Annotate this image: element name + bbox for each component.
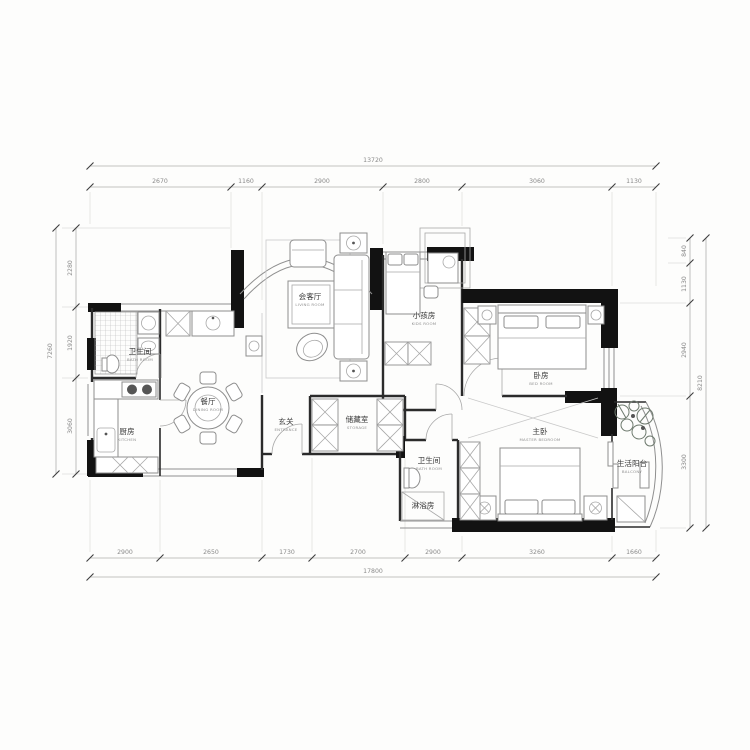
dim-right-seg0: 840 xyxy=(681,245,688,257)
room-label-kids-en: KIDS ROOM xyxy=(412,321,437,326)
door-arc-bath2 xyxy=(426,414,452,440)
dining-chair xyxy=(173,382,191,402)
toilet-tank xyxy=(404,468,409,488)
room-label-bedroom-zh: 卧房 xyxy=(533,370,548,380)
pillow xyxy=(388,254,402,265)
room-label-master-zh: 主卧 xyxy=(532,426,548,436)
dim-top-overall: 13720 xyxy=(363,157,383,164)
room-label-storage-en: STORAGE xyxy=(347,425,368,430)
room-label-dining-en: DINING ROOM xyxy=(193,407,223,412)
room-label-balcony-zh: 生活阳台 xyxy=(617,458,648,468)
room-label-living-en: LIVING ROOM xyxy=(295,302,324,307)
dim-top-seg0: 2670 xyxy=(152,178,168,185)
nightstand xyxy=(478,306,496,324)
room-label-kids-zh: 小孩房 xyxy=(413,310,436,320)
dim-top-seg4: 3060 xyxy=(529,178,545,185)
dim-bot-seg0: 2900 xyxy=(117,549,133,556)
dim-bot-seg4: 2900 xyxy=(425,549,441,556)
wall-column xyxy=(370,248,383,310)
room-label-dining-zh: 餐厅 xyxy=(200,397,216,406)
end-table xyxy=(246,336,262,356)
dimension-right: 840 1130 2940 3300 8210 xyxy=(620,235,710,532)
room-label-entrance-en: ENTRANCE xyxy=(274,427,297,432)
room-label-entrance-zh: 玄关 xyxy=(278,416,294,426)
room-label-kitchen-en: KITCHEN xyxy=(118,437,137,442)
nightstand xyxy=(588,306,604,324)
headboard xyxy=(498,514,582,521)
pillow xyxy=(505,500,538,514)
room-label-bath2-en: BATH ROOM xyxy=(416,466,442,471)
dim-right-seg2: 2940 xyxy=(681,342,688,358)
room-label-bath1-en: BATH ROOM xyxy=(127,357,153,362)
dim-bot-seg2: 1730 xyxy=(279,549,295,556)
dim-bot-seg6: 1660 xyxy=(626,549,642,556)
dining-chair xyxy=(173,414,191,434)
dim-bot-seg1: 2650 xyxy=(203,549,219,556)
pillow xyxy=(546,316,580,328)
desk-chair xyxy=(424,286,438,298)
room-label-bath1-zh: 卫生间 xyxy=(129,346,152,356)
dim-right-overall: 8210 xyxy=(697,375,704,391)
living-room-furniture xyxy=(246,233,369,381)
wall-column xyxy=(565,391,605,403)
dining-chair xyxy=(200,432,216,444)
door-arc-kids xyxy=(436,384,462,410)
kids-room-furniture xyxy=(385,252,458,365)
wall-column xyxy=(237,468,264,477)
kitchen-lower-cabinets xyxy=(96,457,158,473)
dim-right-seg1: 1130 xyxy=(681,276,688,292)
bed xyxy=(498,305,586,369)
sliding-door xyxy=(608,442,613,466)
dim-bot-seg3: 2700 xyxy=(350,549,366,556)
room-label-living-zh: 会客厅 xyxy=(299,291,322,301)
wall-column xyxy=(462,289,613,303)
dining-chair xyxy=(200,372,216,384)
floor-plan-drawing: 13720 2670 1160 2900 2800 3060 1130 2900… xyxy=(0,0,750,750)
dim-bot-seg5: 3260 xyxy=(529,549,545,556)
room-label-kitchen-zh: 厨房 xyxy=(119,426,134,436)
counter-strip xyxy=(166,311,234,336)
dim-right-seg3: 3300 xyxy=(681,454,688,470)
pillow xyxy=(404,254,418,265)
dim-bot-overall: 17800 xyxy=(363,568,383,575)
dim-top-seg2: 2900 xyxy=(314,178,330,185)
room-label-bath2-zh: 卫生间 xyxy=(418,455,441,465)
headboard xyxy=(498,305,586,313)
lounge-chair xyxy=(292,328,332,366)
counter-sink xyxy=(192,311,234,336)
bedroom-furniture xyxy=(464,305,604,369)
armchair xyxy=(290,240,326,267)
room-label-storage-zh: 储藏室 xyxy=(346,414,369,424)
dining-chair xyxy=(225,414,243,434)
dim-left-overall: 7260 xyxy=(47,343,54,359)
room-label-balcony-en: BALCONY xyxy=(622,469,643,474)
floor-plan-page: 13720 2670 1160 2900 2800 3060 1130 2900… xyxy=(0,0,750,750)
dining-chair xyxy=(225,382,243,402)
sofa xyxy=(334,255,369,359)
pillow xyxy=(542,500,575,514)
toilet-tank xyxy=(102,358,107,371)
room-label-master-en: MASTER BEDROOM xyxy=(519,437,560,442)
room-label-bedroom-en: BED ROOM xyxy=(529,381,553,386)
pillow xyxy=(504,316,538,328)
dim-left-seg0: 2280 xyxy=(67,260,74,276)
dim-top-seg1: 1160 xyxy=(238,178,254,185)
dim-top-seg3: 2800 xyxy=(414,178,430,185)
room-label-shower-zh: 淋浴房 xyxy=(412,500,435,510)
bathroom1-fixtures xyxy=(95,312,159,374)
dim-top-seg5: 1130 xyxy=(626,178,642,185)
dim-left-seg2: 3060 xyxy=(67,418,74,434)
dim-left-seg1: 1920 xyxy=(67,335,74,351)
master-bedroom-furniture xyxy=(473,448,607,521)
